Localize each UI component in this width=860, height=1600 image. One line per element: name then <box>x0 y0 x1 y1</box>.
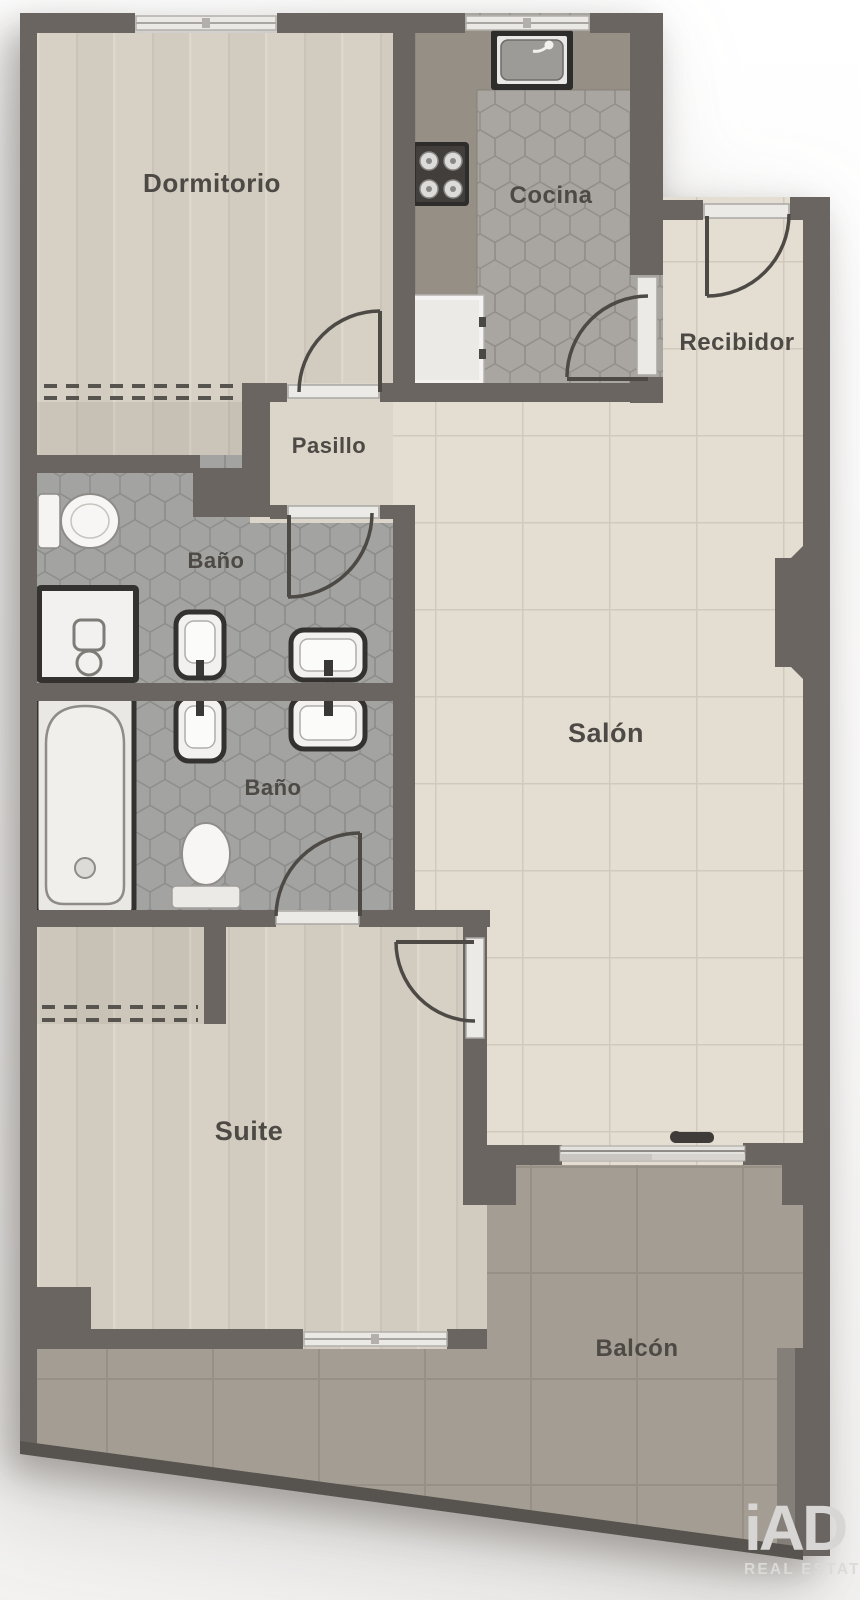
room-label-bano-2: Baño <box>245 775 302 800</box>
room-label-recibidor: Recibidor <box>679 329 794 356</box>
floors <box>37 13 803 1550</box>
door-threshold <box>637 277 657 375</box>
window <box>136 16 276 30</box>
fridge-icon <box>407 295 486 385</box>
closet-dormitorio <box>37 402 242 455</box>
entrance-threshold <box>704 204 789 218</box>
room-label-pasillo: Pasillo <box>292 433 366 458</box>
toilet-icon <box>38 494 119 548</box>
floorplan-svg: Dormitorio Cocina Recibidor Pasillo Baño… <box>0 0 860 1600</box>
room-label-cocina: Cocina <box>509 182 592 209</box>
iad-logo-icon: iAD <box>744 1492 846 1564</box>
door-threshold <box>288 385 379 398</box>
door-threshold <box>276 911 359 924</box>
brand-tagline: REAL ESTATE <box>744 1561 860 1578</box>
room-label-bano-1: Baño <box>188 548 245 573</box>
room-label-dormitorio: Dormitorio <box>143 168 281 198</box>
door-threshold <box>466 938 484 1038</box>
sink-icon <box>291 697 365 749</box>
room-label-suite: Suite <box>215 1116 284 1146</box>
bathtub-icon <box>36 696 134 914</box>
shower-icon <box>39 588 136 680</box>
sink-icon <box>291 630 365 680</box>
brand-logo: iAD REAL ESTATE <box>744 1492 860 1578</box>
room-label-salon: Salón <box>568 718 644 748</box>
stove-icon <box>412 142 469 206</box>
closet-suite <box>37 927 204 1024</box>
window <box>304 1332 447 1346</box>
kitchen-sink-icon <box>491 30 573 90</box>
sink-icon <box>176 697 224 761</box>
door-threshold <box>288 506 379 518</box>
floor-recibidor <box>663 197 803 410</box>
room-label-balcon: Balcón <box>595 1335 678 1362</box>
window <box>466 16 589 30</box>
sink-icon <box>176 612 224 678</box>
floorplan-image: Dormitorio Cocina Recibidor Pasillo Baño… <box>0 0 860 1600</box>
